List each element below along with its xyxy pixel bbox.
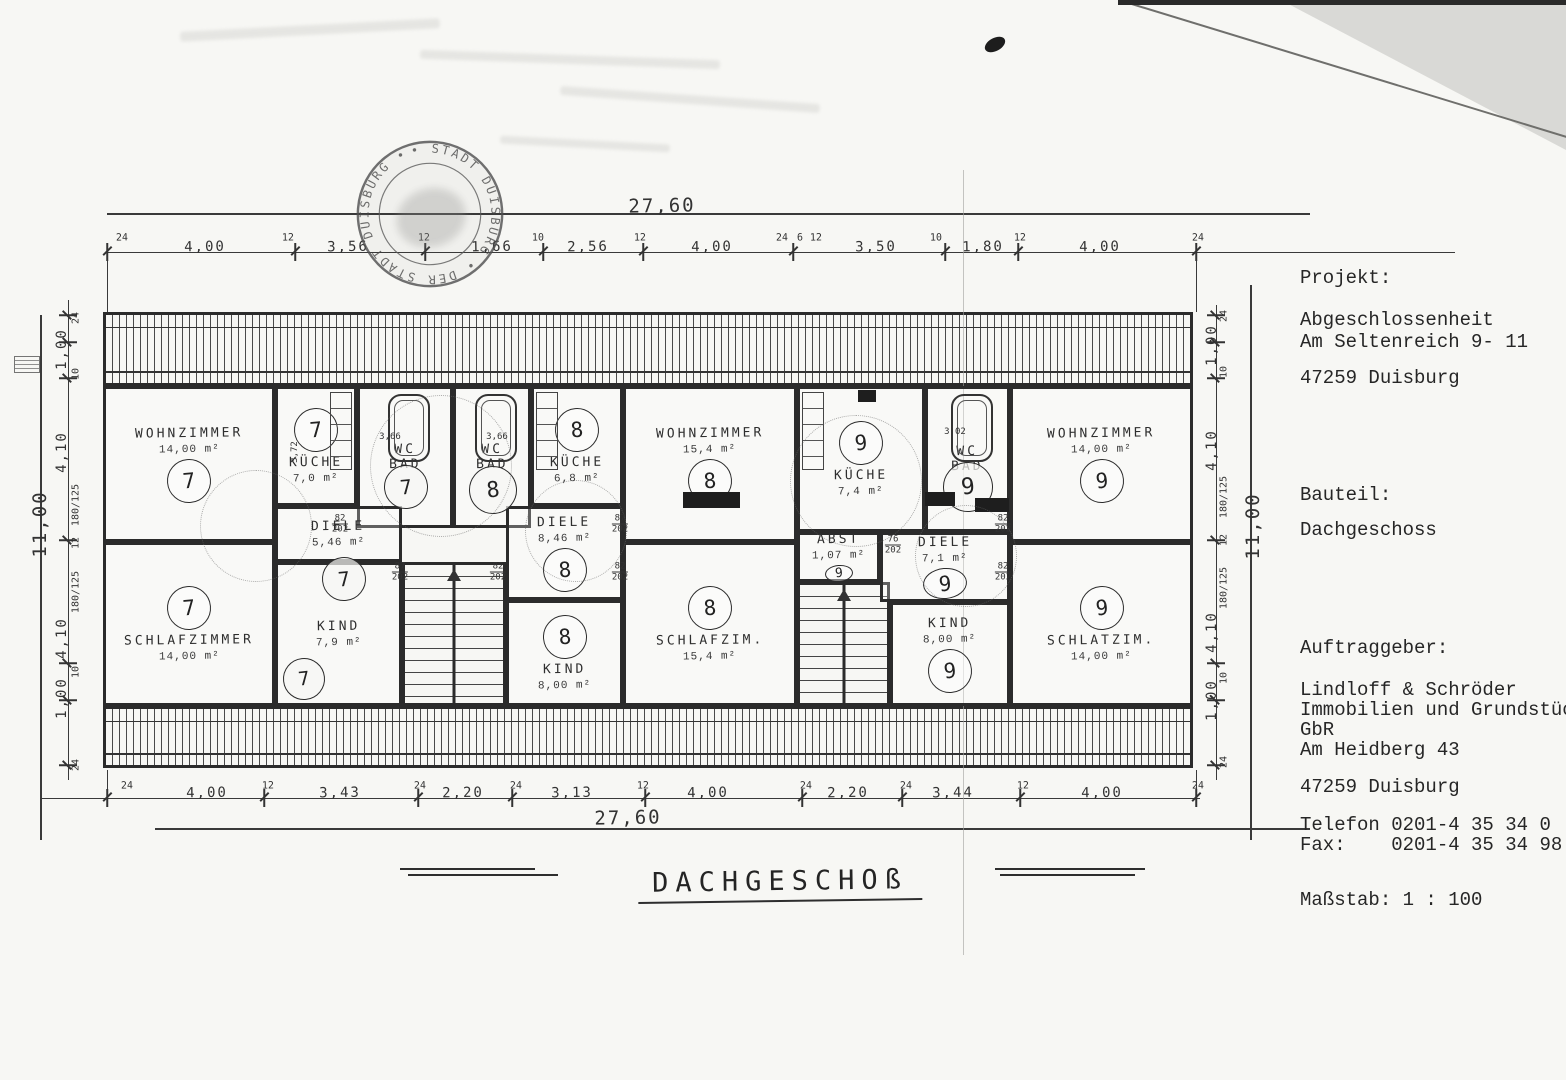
auftraggeber-label: Auftraggeber:	[1300, 638, 1448, 659]
measure-label: 3,66	[486, 432, 508, 442]
dimension-label: 10	[1219, 366, 1230, 378]
measure-label: 3,02	[944, 427, 966, 437]
dimension-label: 12	[810, 232, 822, 243]
telefon-line: Telefon 0201-4 35 34 0	[1300, 815, 1551, 836]
dimension-line	[40, 315, 42, 840]
room-area: 7,0 m²	[293, 472, 339, 485]
dimension-label: 11,00	[29, 490, 51, 557]
dim-tick	[263, 789, 265, 807]
room-kind-9: KIND8,00 m²9	[890, 602, 1010, 706]
roof-band-top	[103, 312, 1193, 386]
door-size-label: 82202	[995, 562, 1011, 583]
title-rule	[1000, 874, 1135, 876]
room-name: KIND	[928, 615, 971, 630]
measure-label: 3,72	[290, 441, 300, 463]
room-area: 7,9 m²	[316, 637, 362, 650]
dimension-label: 24	[776, 232, 788, 243]
room-area: 14,00 m²	[1071, 443, 1132, 456]
dimension-label: 2,20	[827, 785, 869, 802]
dim-tick	[1207, 699, 1225, 701]
dimension-label: 1,00	[54, 677, 70, 719]
dimension-label: 2,56	[567, 239, 609, 256]
dim-tick	[1019, 789, 1021, 807]
door-swing-arc	[200, 470, 312, 582]
dimension-label: 4,10	[54, 617, 70, 659]
chimney-block	[683, 492, 740, 508]
door-size-label: 82202	[490, 562, 506, 583]
dim-tick	[59, 377, 77, 379]
room-number-circle: 8	[553, 406, 601, 454]
dimension-label: 10	[930, 232, 942, 243]
door-size-label: 87202	[392, 562, 408, 583]
dimension-label: 24	[1219, 756, 1230, 768]
door-size-label: 76202	[885, 535, 901, 556]
door-size-label: 82202	[995, 514, 1011, 535]
dim-tick	[59, 341, 77, 343]
room-area: 8,00 m²	[923, 633, 976, 646]
fax-line: Fax: 0201-4 35 34 98	[1300, 835, 1562, 856]
dimension-label: 1,80	[962, 239, 1004, 256]
dim-tick	[106, 243, 108, 261]
dim-tick	[417, 789, 419, 807]
dimension-label: 4,00	[691, 239, 733, 256]
room-wohnzimmer-9: WOHNZIMMER14,00 m²9	[1010, 386, 1193, 542]
room-name: WOHNZIMMER	[656, 425, 764, 441]
dimension-label: 4,00	[1081, 785, 1123, 802]
dimension-label: 4,00	[184, 239, 226, 256]
dim-tick	[59, 662, 77, 664]
dim-tick	[1195, 243, 1197, 261]
room-number-circle: 9	[1078, 584, 1126, 632]
dim-tick	[642, 243, 644, 261]
dimension-line	[107, 252, 108, 312]
auftraggeber-line4: Am Heidberg 43	[1300, 740, 1460, 761]
info-panel: Projekt: Abgeschlossenheit Am Seltenreic…	[1300, 250, 1560, 586]
bauteil-value: Dachgeschoss	[1300, 520, 1437, 541]
projekt-label: Projekt:	[1300, 268, 1391, 289]
door-swing-arc	[790, 415, 922, 547]
dimension-label: 24	[414, 780, 426, 791]
dimension-label: 4,00	[186, 785, 228, 802]
dimension-label: 4,10	[1204, 429, 1220, 471]
door-swing-arc	[370, 395, 512, 537]
dim-tick	[1207, 341, 1225, 343]
title-rule	[995, 868, 1145, 870]
roof-band-bottom	[103, 706, 1193, 768]
dim-tick	[294, 243, 296, 261]
dim-tick	[1207, 764, 1225, 766]
room-number-circle: 9	[1078, 457, 1126, 505]
room-treppe-1	[402, 562, 506, 706]
massstab-line: Maßstab: 1 : 100	[1300, 890, 1482, 911]
dimension-label: 180/125	[1219, 567, 1230, 609]
dim-tick	[511, 789, 513, 807]
room-area: 14,00 m²	[1071, 650, 1132, 663]
room-wohnzimmer-8: WOHNZIMMER15,4 m²8	[623, 386, 797, 542]
dimension-label: 10	[71, 666, 82, 678]
measure-label: 3,66	[379, 432, 401, 442]
dim-tick	[1017, 243, 1019, 261]
dimension-label: 3,50	[855, 239, 897, 256]
room-schlatzim-9: 9SCHLATZIM.14,00 m²	[1010, 542, 1193, 706]
dimension-label: 10	[532, 232, 544, 243]
door-size-label: 87202	[612, 514, 628, 535]
room-number-circle: 9	[824, 564, 853, 583]
title-rule	[408, 874, 558, 876]
dim-tick	[59, 314, 77, 316]
room-number-circle: 7	[165, 584, 213, 632]
room-area: 8,00 m²	[538, 679, 591, 692]
dim-tick	[1207, 377, 1225, 379]
door-size-label: 82202	[612, 562, 628, 583]
dimension-label: 180/125	[71, 571, 82, 613]
dim-tick	[106, 789, 108, 807]
dimension-label: 2,20	[442, 785, 484, 802]
dim-tick	[59, 699, 77, 701]
room-name: WOHNZIMMER	[135, 425, 243, 441]
auftraggeber-line1: Lindloff & Schröder	[1300, 680, 1517, 701]
dimension-label: 12	[634, 232, 646, 243]
dim-tick	[59, 539, 77, 541]
projekt-line1: Abgeschlossenheit	[1300, 310, 1494, 331]
dim-tick	[792, 243, 794, 261]
room-name: KIND	[317, 619, 360, 634]
dimension-label: 11,00	[1242, 492, 1264, 559]
room-area: 14,00 m²	[158, 650, 219, 663]
dimension-label: 24	[1192, 232, 1204, 243]
dimension-label: 4,00	[687, 785, 729, 802]
dimension-label: 12	[637, 780, 649, 791]
dimension-label: 24	[1192, 780, 1204, 791]
dimension-label: 180/125	[71, 484, 82, 526]
room-number-circle: 8	[686, 584, 734, 632]
title-rule	[400, 868, 535, 870]
room-number-circle: 7	[165, 457, 213, 505]
chimney-block	[858, 390, 876, 402]
room-area: 15,4 m²	[683, 443, 736, 456]
auftraggeber-city: 47259 Duisburg	[1300, 777, 1460, 798]
dimension-label: 3,13	[551, 785, 593, 802]
dimension-label: 24	[1219, 310, 1230, 322]
room-kind-8: 8KIND8,00 m²	[506, 600, 623, 706]
projekt-line2: Am Seltenreich 9- 11	[1300, 332, 1528, 353]
projekt-city: 47259 Duisburg	[1300, 368, 1460, 389]
room-number-circle: 9	[926, 647, 974, 695]
dimension-label: 24	[121, 780, 133, 791]
auftraggeber-line3: GbR	[1300, 720, 1334, 741]
bauteil-label: Bauteil:	[1300, 485, 1391, 506]
dimension-line	[107, 213, 1310, 215]
room-treppe-2	[797, 582, 890, 706]
drawing-title: DACHGESCHOß	[638, 864, 922, 904]
room-name: WOHNZIMMER	[1047, 425, 1155, 441]
dimension-label: 4,10	[1204, 611, 1220, 653]
dimension-label: 180/125	[1219, 476, 1230, 518]
dim-tick	[944, 243, 946, 261]
dimension-line	[1250, 285, 1252, 840]
dimension-label: 27,60	[594, 806, 662, 829]
dimension-label: 6	[797, 232, 803, 243]
kitchen-counter-icon	[330, 392, 352, 470]
room-area: 5,46 m²	[312, 537, 365, 550]
room-area: 15,4 m²	[683, 650, 736, 663]
dim-tick	[1207, 539, 1225, 541]
room-name: KIND	[543, 661, 586, 676]
dimension-line	[155, 828, 1310, 830]
dimension-label: 10	[1219, 672, 1230, 684]
room-name: SCHLAFZIMMER	[124, 632, 254, 648]
chimney-block	[925, 492, 955, 506]
dim-tick	[59, 764, 77, 766]
dimension-label: 27,60	[628, 194, 696, 217]
room-area: 1,07 m²	[812, 550, 865, 563]
room-name: SCHLATZIM.	[1047, 632, 1155, 648]
dim-tick	[801, 789, 803, 807]
dimension-label: 24	[116, 232, 128, 243]
dimension-label: 3,44	[932, 785, 974, 802]
dim-tick	[644, 789, 646, 807]
dimension-label: 4,00	[1079, 239, 1121, 256]
dimension-label: 1,00	[54, 328, 70, 370]
room-schlafzim-8: 8SCHLAFZIM.15,4 m²	[623, 542, 797, 706]
dimension-label: 12	[1014, 232, 1026, 243]
dim-tick	[1195, 789, 1197, 807]
dimension-line	[107, 252, 1455, 253]
dimension-label: 3,43	[319, 785, 361, 802]
dim-tick	[542, 243, 544, 261]
door-size-label: 82202	[332, 514, 348, 535]
title-block: DACHGESCHOß	[400, 852, 1160, 902]
room-number-circle: 8	[541, 613, 589, 661]
dimension-line	[1196, 252, 1197, 312]
kitchen-counter-icon	[536, 392, 558, 470]
dimension-label: 12	[282, 232, 294, 243]
dim-tick	[1207, 314, 1225, 316]
room-name: SCHLAFZIM.	[656, 632, 764, 648]
dim-tick	[901, 789, 903, 807]
auftraggeber-line2: Immobilien und Grundstücksha	[1300, 700, 1566, 721]
dimension-label: 4,10	[54, 431, 70, 473]
dim-tick	[1207, 662, 1225, 664]
room-area: 14,00 m²	[158, 443, 219, 456]
